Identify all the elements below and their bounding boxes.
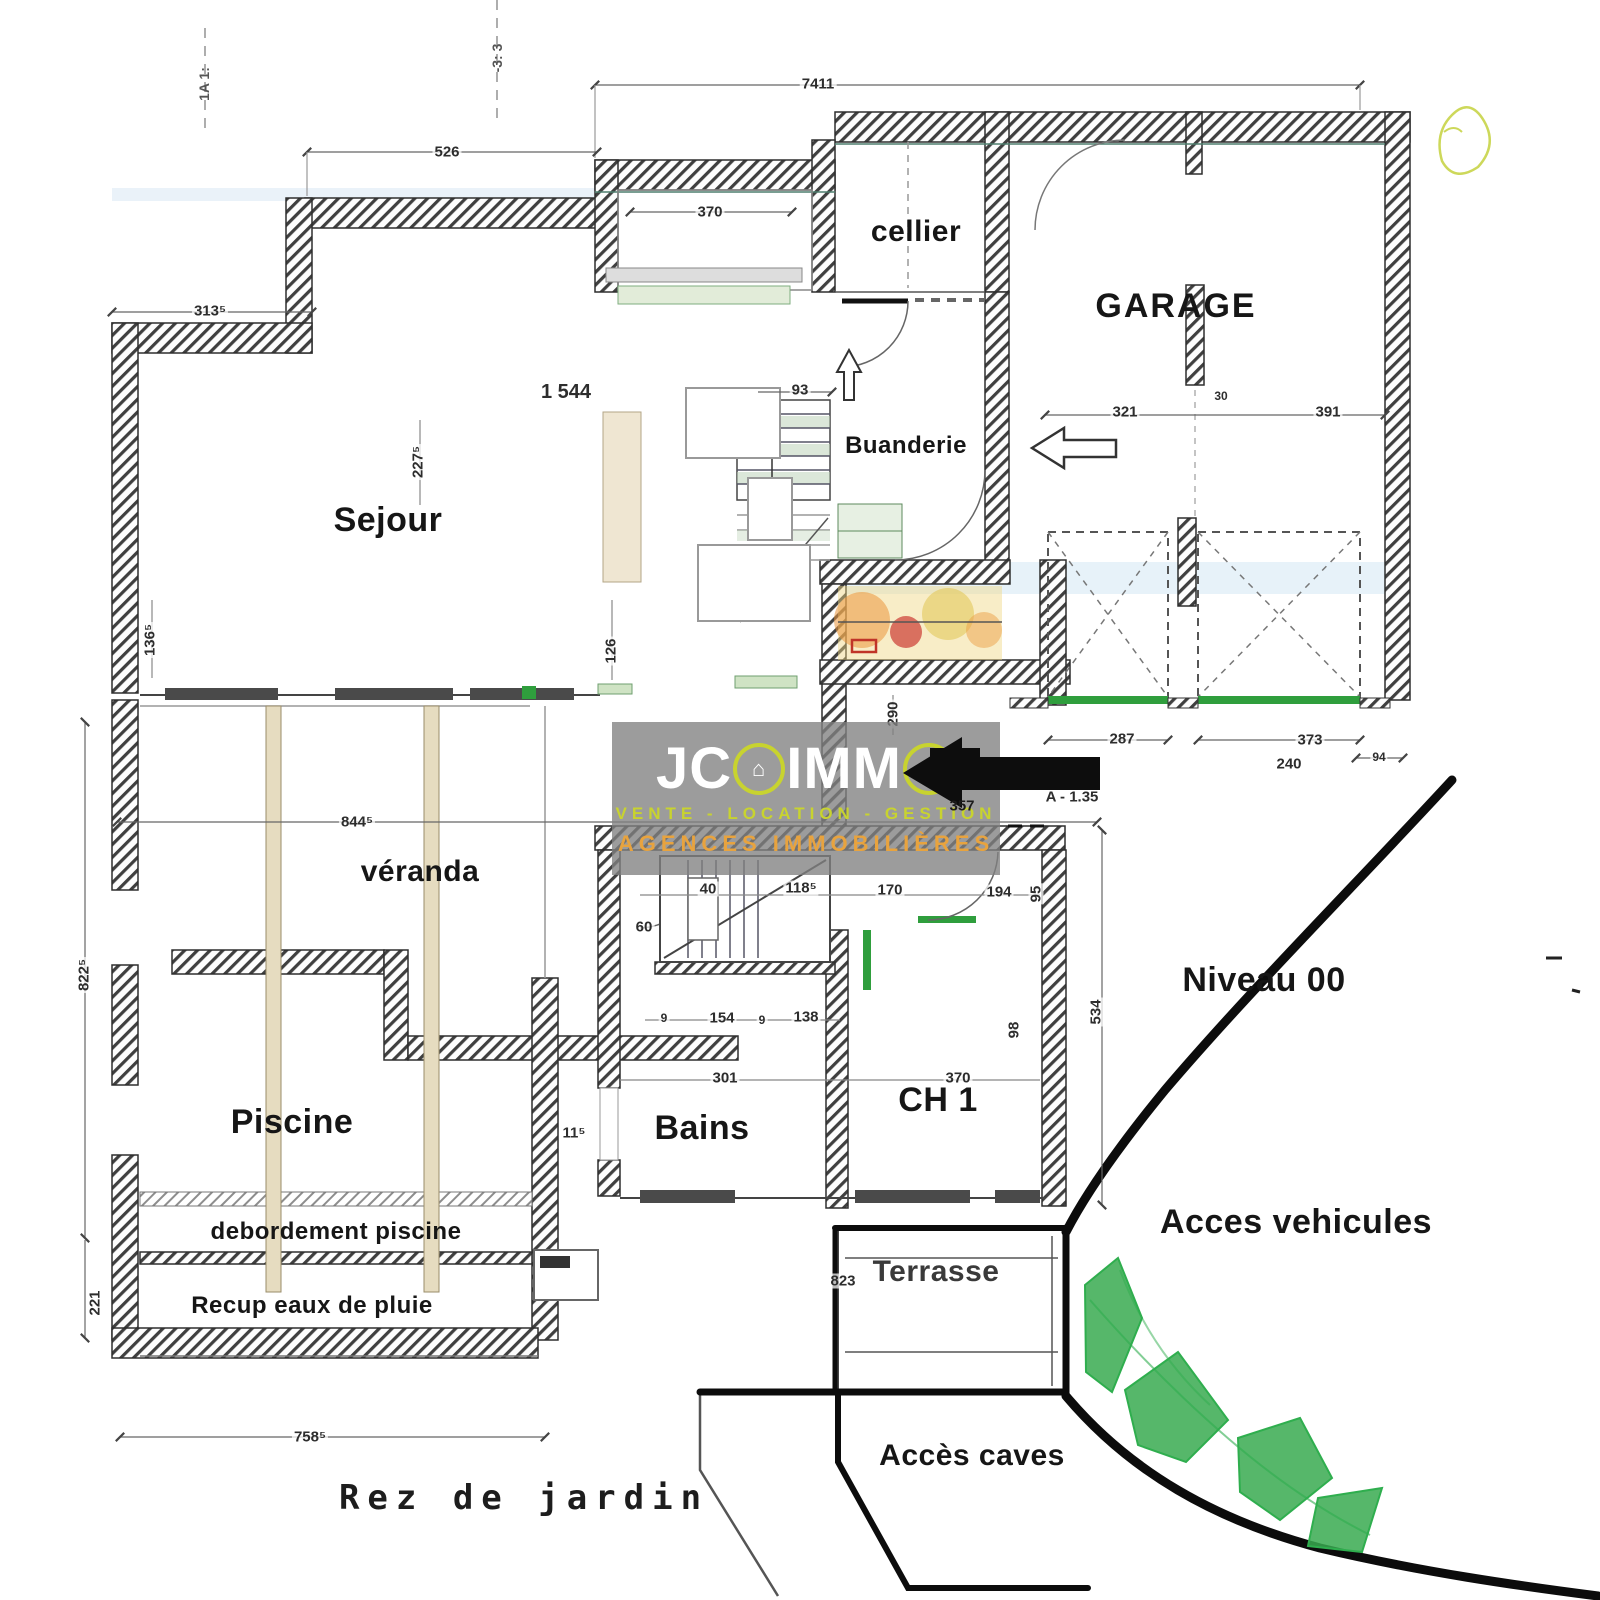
logo-jc: JC (656, 740, 732, 798)
label-niveau-00: Niveau 00 (1182, 963, 1345, 997)
axis-marker-1: 1A 1: (197, 67, 211, 101)
dim-9a: 9 (659, 1012, 670, 1024)
room-label-ch1: CH 1 (898, 1083, 977, 1117)
logo-imm: IMM (786, 740, 902, 798)
axis-marker-2: -3: 3 (490, 44, 504, 73)
dim-391: 391 (1313, 405, 1342, 420)
dim-227-5: 227⁵ (411, 444, 426, 480)
agency-logo: JC⌂IMM⌂ (656, 740, 956, 798)
dim-top: 7411 (800, 77, 837, 92)
label-acces-vehicules: Acces vehicules (1160, 1205, 1432, 1239)
up-arrow-icon (837, 350, 861, 400)
logo-o-ring-icon: ⌂ (903, 743, 955, 795)
vegetation-sketch (1085, 1258, 1382, 1552)
dim-526: 526 (432, 145, 461, 160)
dim-373: 373 (1295, 733, 1324, 748)
room-label-buanderie: Buanderie (845, 434, 967, 458)
label-acces-caves: Accès caves (879, 1441, 1065, 1471)
dim-758-5: 758⁵ (292, 1430, 328, 1445)
dim-118-5: 118⁵ (783, 881, 818, 896)
logo-house-icon: ⌂ (752, 758, 766, 780)
floor-plan: JC⌂IMM⌂ VENTE - LOCATION - GESTION AGENC… (0, 0, 1600, 1600)
dim-11-5: 11⁵ (561, 1126, 588, 1141)
dim-136-5: 136⁵ (143, 622, 158, 658)
dim-170: 170 (875, 883, 904, 898)
dim-822-5: 822⁵ (77, 957, 92, 993)
dim-287: 287 (1107, 732, 1136, 747)
dim-370: 370 (695, 205, 724, 220)
dim-30: 30 (1212, 390, 1229, 402)
dim-194: 194 (984, 885, 1013, 900)
agency-subtitle: AGENCES IMMOBILIÈRES (618, 831, 994, 857)
dim-95: 95 (1029, 884, 1044, 905)
room-label-sejour: Sejour (334, 503, 443, 537)
dim-301: 301 (710, 1071, 739, 1086)
dim-9b: 9 (757, 1014, 768, 1026)
dim-240: 240 (1274, 757, 1303, 772)
room-label-garage: GARAGE (1095, 289, 1256, 323)
dim-1544: 1 544 (539, 382, 593, 402)
dim-98: 98 (1007, 1020, 1022, 1041)
dim-357: 357 (947, 799, 976, 814)
logo-g-ring-icon: ⌂ (733, 743, 785, 795)
dim-823: 823 (828, 1274, 857, 1289)
logo-house-icon: ⌂ (922, 758, 936, 780)
dim-94: 94 (1370, 751, 1387, 763)
dim-221: 221 (88, 1288, 103, 1317)
agency-watermark: JC⌂IMM⌂ VENTE - LOCATION - GESTION AGENC… (612, 722, 1000, 875)
room-label-cellier: cellier (871, 217, 961, 247)
dim-126: 126 (604, 636, 619, 665)
dim-93: 93 (790, 383, 811, 398)
room-label-bains: Bains (654, 1111, 749, 1145)
dim-844-5: 844⁵ (339, 815, 375, 830)
agency-tagline: VENTE - LOCATION - GESTION (616, 804, 997, 824)
room-label-veranda: véranda (361, 857, 480, 887)
dim-138: 138 (791, 1010, 820, 1025)
driveway-curves (1066, 780, 1598, 1596)
room-label-piscine: Piscine (231, 1105, 354, 1139)
floor-title: Rez de jardin (339, 1481, 709, 1515)
garage-entry-arrow-icon (1032, 428, 1116, 468)
room-label-recup: Recup eaux de pluie (191, 1294, 433, 1318)
dim-40: 40 (698, 882, 719, 897)
dim-a135: A - 1.35 (1044, 790, 1101, 805)
dim-154: 154 (707, 1011, 736, 1026)
dim-313-5: 313⁵ (192, 304, 228, 319)
room-label-terrasse: Terrasse (873, 1257, 1000, 1287)
room-label-debordement: debordement piscine (211, 1220, 462, 1244)
dim-60: 60 (634, 920, 655, 935)
dim-534: 534 (1089, 997, 1104, 1026)
dim-321: 321 (1110, 405, 1139, 420)
